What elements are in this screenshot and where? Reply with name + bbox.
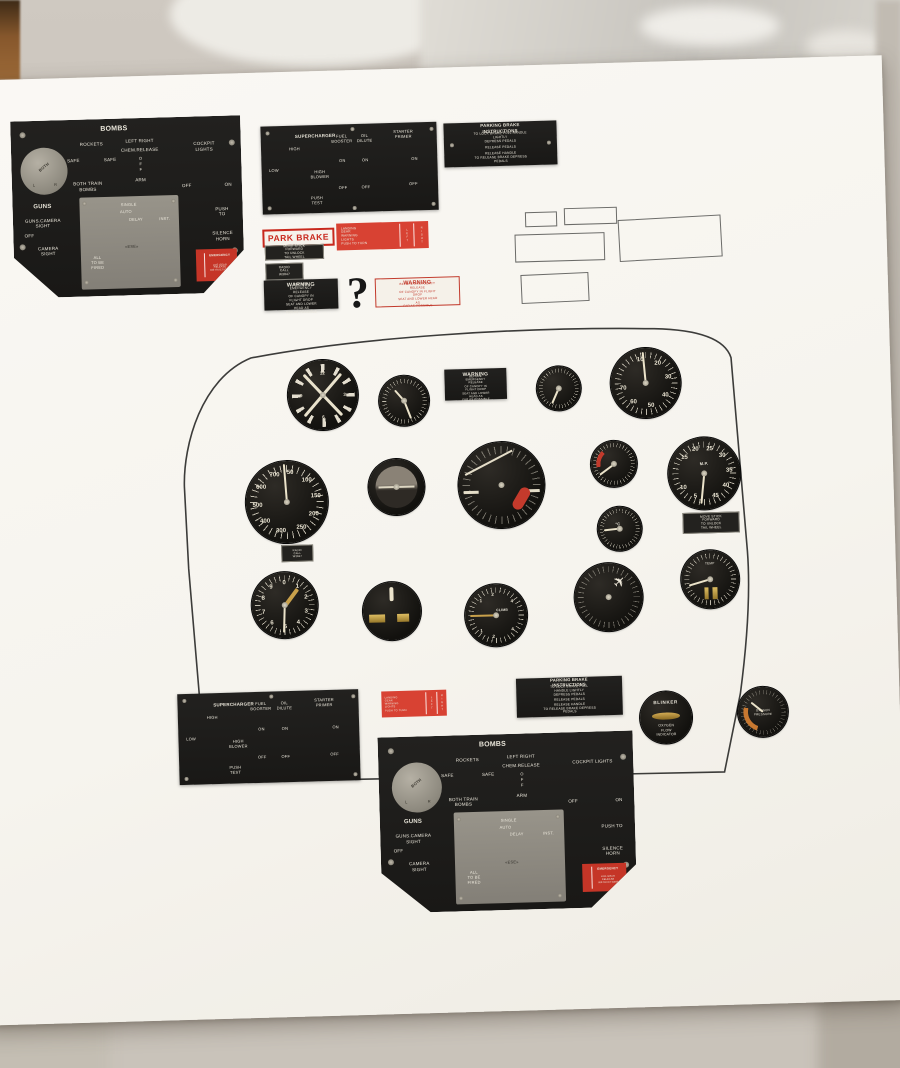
dial-number: 5 (694, 494, 698, 500)
dial-number: 20 (654, 360, 661, 366)
rocket-selector-knob: BOTH L R (391, 762, 442, 813)
dial-number: 60 (630, 400, 637, 406)
dial-number: 10 (680, 485, 687, 491)
screw-icon (185, 777, 189, 781)
radio-call-label-small: RADIO CALL W3847 (281, 544, 313, 562)
bomb-release-inner-panel: SINGLE AUTO DELAY INST. «ESE» ALL TO BE … (454, 810, 566, 905)
starter-primer-label: STARTER PRIMER (307, 697, 342, 708)
screw-icon (353, 772, 357, 776)
gold-bar (704, 587, 709, 599)
airspeed-indicator-gauge: 50100150200250300400500600700 (245, 460, 329, 544)
dial-number: 30 (719, 453, 726, 459)
single-label: SINGLE (501, 818, 517, 823)
dial-number: 1 (480, 628, 483, 633)
climb-label: CLIMB (496, 608, 508, 612)
high-label: HIGH (207, 715, 218, 720)
paper-sheet: BOTH L R BOMBS ROCKETS LEFT RIGHT CHEM.R… (0, 55, 900, 1025)
dial-number: 300 (276, 528, 286, 534)
bombs-title: BOMBS (479, 740, 506, 749)
dial-number: 6 (270, 621, 274, 627)
safe-label: SAFE (482, 772, 495, 778)
screw-icon (620, 754, 626, 760)
knob-right-label: R (428, 800, 431, 805)
oil-dilute-label: OIL DILUTE (277, 702, 293, 712)
dial-number: 150 (311, 493, 321, 499)
landing-gear-lines: LANDING GEAR WARNING LIGHTS PUSH TO TURN (385, 696, 407, 712)
clock-gauge: 12369 (287, 359, 359, 431)
dial-number: 4 (297, 620, 301, 626)
screw-icon (558, 893, 562, 897)
gauge-hub (611, 461, 617, 467)
center-mark-label: «ESE» (505, 860, 519, 865)
dial-number: 1 (479, 598, 482, 603)
photo-scene: BOTH L R BOMBS ROCKETS LEFT RIGHT CHEM.R… (0, 0, 900, 1068)
on-label: ON (282, 727, 289, 732)
dial-number: 4 (511, 626, 514, 631)
mp-label: M.P. (700, 462, 709, 467)
dial-number: 35 (726, 467, 733, 473)
dial-number: 40 (723, 483, 730, 489)
gold-bar-left (369, 615, 385, 623)
temp-label: TEMP (705, 562, 715, 566)
chem-release-label: CHEM.RELEASE (502, 762, 540, 769)
high-blower-label: HIGH BLOWER (229, 739, 248, 749)
off-label: OFF (330, 752, 339, 757)
screw-icon (556, 814, 560, 818)
tail-wheel-label-small: MOVE STICK FORWARD TO UNLOCK TAIL WHEEL (682, 511, 740, 534)
dial-number: 0 (282, 580, 286, 586)
canopy-warning-placard-small: WARNING BEFORE EMERGENCY RELEASE OF CANO… (444, 368, 507, 401)
dial-number: 700 (269, 472, 279, 478)
arm-label: ARM (517, 792, 528, 798)
rockets-label: ROCKETS (456, 757, 479, 763)
emergency-lines: LDG GEAR RELEASE INSTRUCTIONS (598, 876, 619, 885)
dial-number: 2 (304, 595, 308, 601)
off-label: OFF (394, 849, 404, 855)
off-vertical-label: OFF (519, 771, 523, 788)
dial-number: 45 (712, 493, 719, 499)
both-train-bombs-label: BOTH TRAIN BOMBS (449, 796, 478, 808)
landing-gear-warning-label-bottom: LANDING GEAR WARNING LIGHTS PUSH TO TURN… (381, 690, 447, 718)
auto-label: AUTO (500, 825, 512, 830)
knob-label: BOTH (411, 778, 423, 789)
vertical-speed-gauge: 124421 CLIMB (464, 583, 528, 647)
top-index-bar (389, 587, 394, 601)
dial-number: 2 (492, 634, 495, 639)
dial-number: 600 (256, 484, 266, 490)
on-label: ON (615, 797, 622, 803)
dial-number: 3 (343, 392, 346, 397)
dial-number: 6 (322, 414, 325, 419)
dial-number: 15 (681, 455, 688, 461)
off-label: OFF (568, 798, 578, 804)
dial-number: 50 (648, 402, 655, 408)
camera-sight-label: CAMERA SIGHT (409, 861, 430, 873)
wing-bar-left (464, 491, 479, 494)
dial-number: 7 (262, 610, 266, 616)
dial-number: 250 (296, 525, 306, 531)
screw-icon (269, 695, 273, 699)
radio-call-text: RADIO CALL W3847 (290, 548, 305, 558)
dial-number: 400 (260, 519, 270, 525)
gold-bar-right (397, 614, 410, 622)
left-right-label: LEFT RIGHT (507, 753, 535, 759)
delay-label: DELAY (510, 832, 524, 837)
guns-camera-sight-label: GUNS.CAMERA SIGHT (395, 833, 431, 845)
knob-left-label: L (405, 800, 408, 805)
screw-icon (388, 748, 394, 754)
altimeter-gauge: 0123456789 (251, 571, 319, 639)
fuel-booster-label: FUEL BOOSTER (250, 702, 271, 712)
dial-number: 20 (692, 447, 699, 453)
right-column-label: RIGHT (440, 694, 443, 712)
safe-label: SAFE (441, 773, 454, 779)
guns-label: GUNS (404, 819, 422, 827)
parking-brake-placard-bottom: PARKING BRAKE INSTRUCTIONS TO LOCK BRAKE… (516, 676, 623, 718)
supercharger-placard-bottom: SUPERCHARGER HIGH FUEL BOOSTER OIL DILUT… (177, 689, 360, 785)
tail-wheel-text: MOVE STICK FORWARD TO UNLOCK TAIL WHEEL (697, 515, 725, 531)
low-label: LOW (186, 738, 196, 743)
dial-number: 100 (302, 477, 312, 483)
inst-label: INST. (543, 832, 554, 837)
gold-bar (713, 587, 718, 599)
emergency-title: EMERGENCY (597, 867, 618, 871)
screw-icon (459, 896, 463, 900)
dial-number: 25 (706, 446, 713, 452)
push-test-label: PUSH TEST (229, 766, 241, 776)
warning-lines: BEFORE EMERGENCY RELEASE OF CANOPY IN FL… (460, 374, 492, 402)
dial-number: 2 (491, 592, 494, 597)
bombs-control-panel-bottom: BOTH L R BOMBS ROCKETS LEFT RIGHT CHEM.R… (377, 730, 637, 913)
parking-brake-line: TO RELEASE BRAKE DEPRESS PEDALS (543, 706, 596, 715)
tachometer-gauge: 10203040506070 (610, 347, 682, 419)
silence-horn-label: SILENCE HORN (602, 845, 623, 857)
dial-number: 200 (309, 511, 319, 517)
dial-number: 12 (320, 371, 325, 376)
screw-icon (183, 699, 187, 703)
left-column-label: LEFT (429, 696, 432, 710)
all-to-be-fired-label: ALL TO BE FIRED (467, 871, 480, 886)
dial-number: 500 (252, 502, 262, 508)
blinker-title: BLINKER (653, 700, 678, 706)
screw-icon (388, 859, 394, 865)
manifold-pressure-gauge: 15202530354045510 M.P. (667, 436, 741, 510)
dial-number: 40 (662, 392, 669, 398)
divider-line (436, 692, 438, 714)
blinker-eye (652, 712, 679, 720)
dial-number: 9 (300, 393, 303, 398)
oxygen-flow-indicator-label: OXYGEN FLOW INDICATOR (653, 723, 679, 736)
dial-number: 30 (665, 374, 672, 380)
dial-number: 50 (287, 470, 294, 476)
dial-number: 70 (620, 385, 627, 391)
on-label: ON (332, 725, 339, 730)
off-label: OFF (258, 756, 267, 761)
dial-number: 8 (261, 596, 265, 602)
push-to-label: PUSH TO (601, 823, 622, 829)
supercharger-title: SUPERCHARGER (213, 701, 254, 708)
dial-number: 9 (269, 584, 273, 590)
dial-number: 4 (511, 599, 514, 604)
on-label: ON (258, 728, 265, 733)
dial-number: 3 (305, 608, 309, 614)
screw-icon (351, 694, 355, 698)
screw-icon (457, 817, 461, 821)
cockpit-lights-label: COCKPIT LIGHTS (572, 758, 612, 765)
divider-line (425, 692, 427, 714)
printed-artwork: BOTH L R BOMBS ROCKETS LEFT RIGHT CHEM.R… (0, 0, 900, 1068)
off-label: OFF (281, 755, 290, 760)
divider-line (591, 867, 593, 888)
